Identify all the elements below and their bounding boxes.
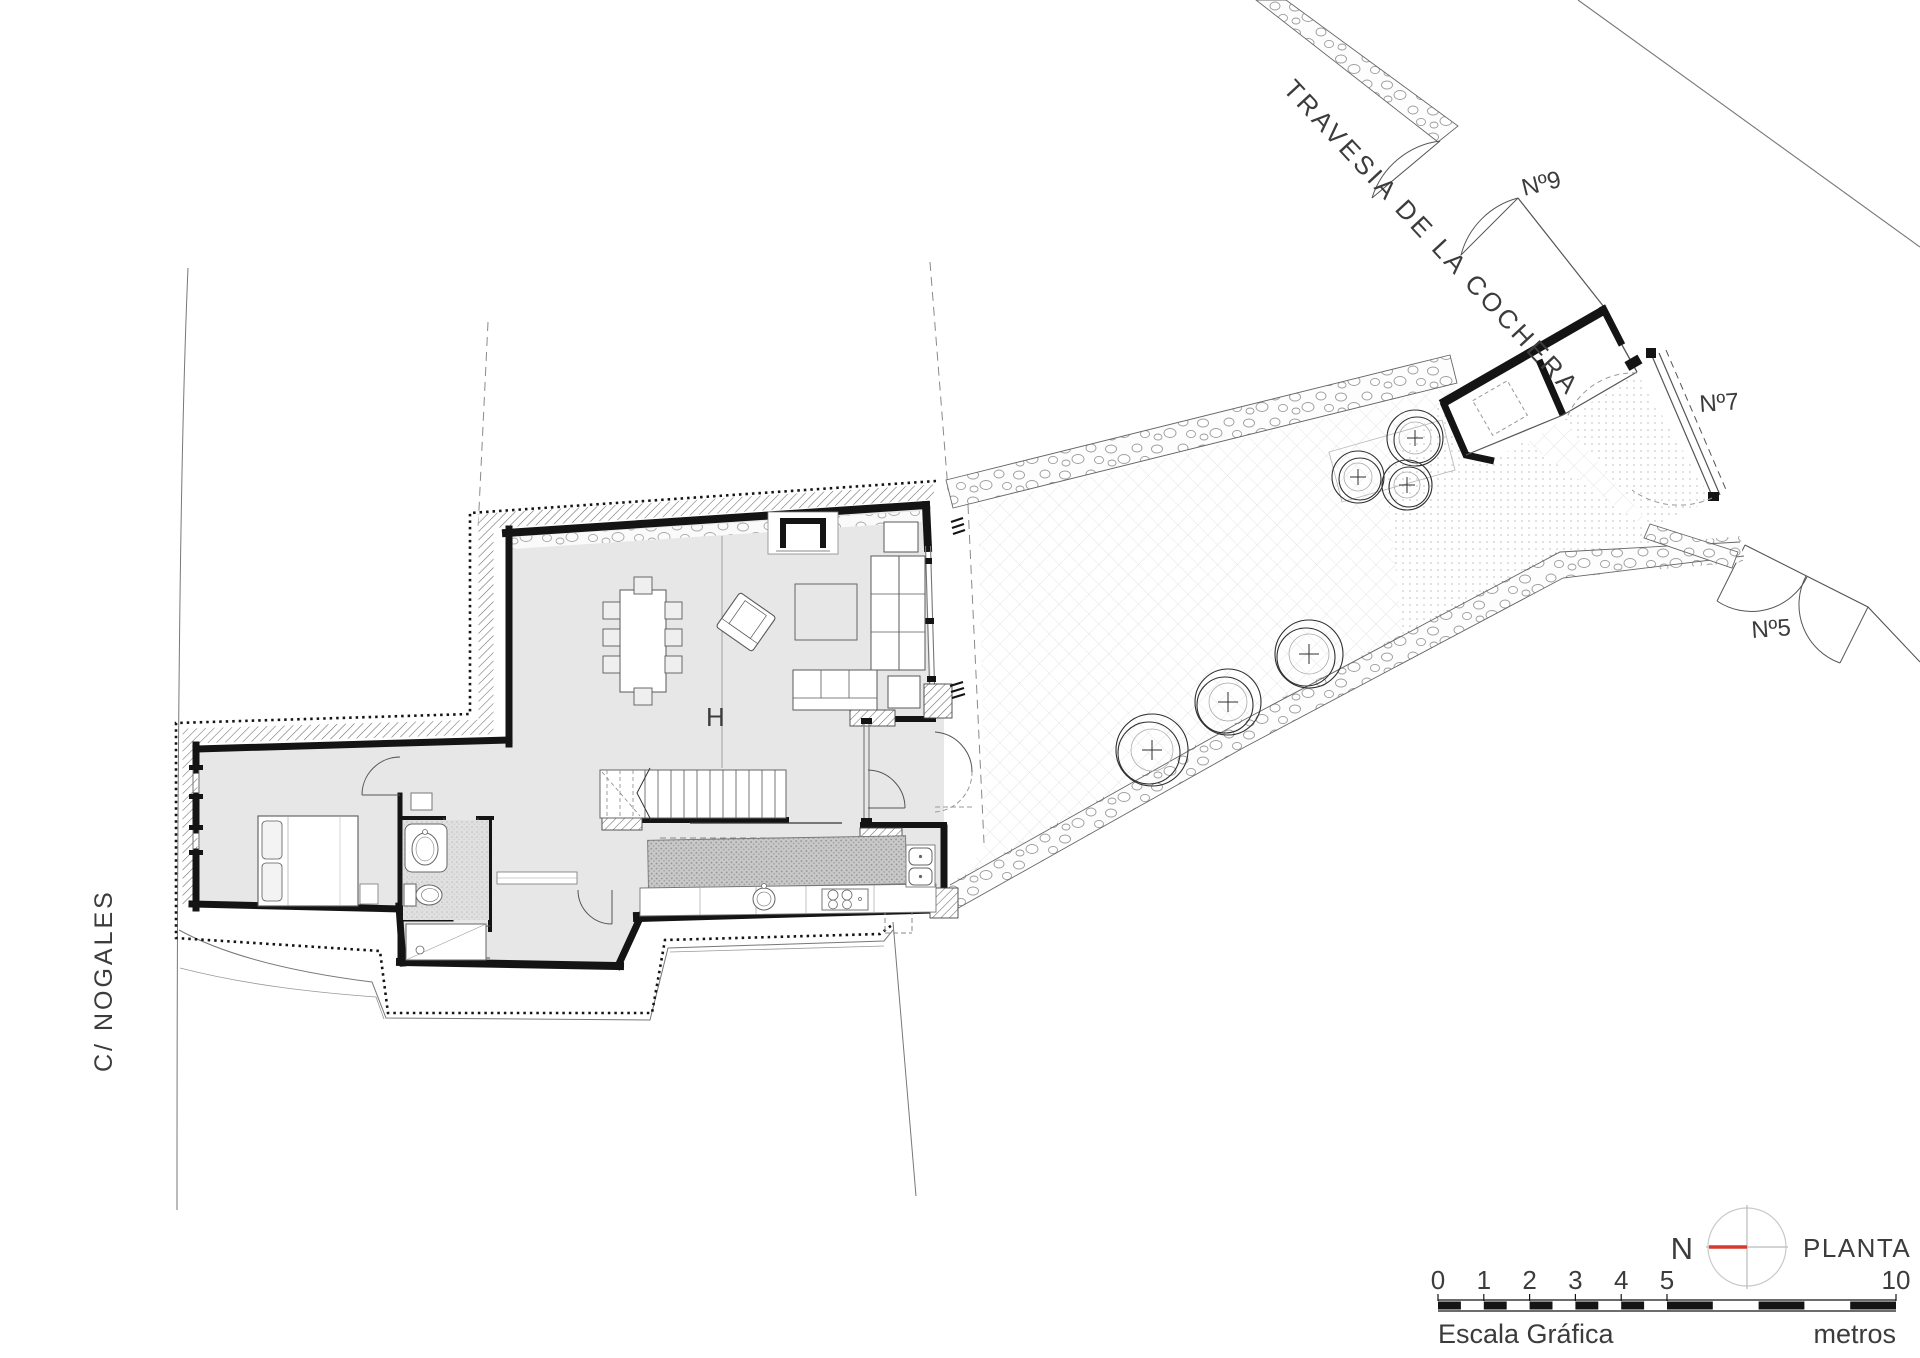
floor-plan-page: TRAVESIA DE LA COCHERA C/ NOGALES Nº9 Nº…	[0, 0, 1920, 1358]
scale-tick-label: 4	[1614, 1265, 1628, 1295]
street-label-nogales: C/ NOGALES	[90, 889, 118, 1072]
address-label-n7: Nº7	[1699, 388, 1740, 418]
stove	[822, 889, 868, 910]
sofa-straight	[793, 670, 877, 710]
plan-title: PLANTA BAJA	[1803, 1233, 1920, 1263]
double-sink-unit	[906, 845, 935, 887]
kitchen-counter	[640, 884, 936, 916]
floor-plan-canvas: TRAVESIA DE LA COCHERA C/ NOGALES Nº9 Nº…	[0, 0, 1920, 1358]
step-tick-marks	[950, 518, 965, 698]
dining-table	[620, 590, 666, 692]
bathroom	[403, 820, 489, 960]
fireplace-window	[768, 512, 838, 554]
vanity-sink	[405, 824, 447, 872]
bedside-table	[360, 884, 378, 904]
stone-wall-street-top	[1256, 0, 1458, 142]
scale-caption: Escala Gráfica	[1438, 1319, 1615, 1349]
kitchen	[640, 836, 936, 916]
scale-tick-label: 1	[1477, 1265, 1491, 1295]
address-label-n9: Nº9	[1519, 166, 1564, 202]
hall	[497, 872, 577, 884]
bed	[258, 816, 358, 906]
door-arc-n5	[1717, 545, 1868, 663]
scale-tick-label: 2	[1522, 1265, 1536, 1295]
scale-unit: metros	[1813, 1319, 1896, 1349]
building-main-house	[176, 481, 972, 1013]
scale-bar-blocks	[1438, 1302, 1896, 1310]
double-height-label: H	[706, 702, 725, 732]
garden-patio	[946, 355, 1744, 911]
toilet	[404, 884, 442, 906]
side-table	[884, 522, 918, 552]
scale-bar: 0 1 2 3 4 5 10 Escala Gráfica metros	[1431, 1265, 1911, 1349]
scale-tick-label: 0	[1431, 1265, 1445, 1295]
scale-tick-label: 3	[1568, 1265, 1582, 1295]
scale-tick-label: 10	[1882, 1265, 1911, 1295]
scale-tick-label: 5	[1660, 1265, 1674, 1295]
north-letter: N	[1671, 1231, 1693, 1266]
scale-bar-numbers: 0 1 2 3 4 5 10	[1431, 1265, 1911, 1295]
address-label-n5: Nº5	[1751, 614, 1792, 644]
side-table	[888, 676, 920, 708]
shower	[406, 924, 486, 960]
kitchen-island	[648, 836, 907, 888]
closet	[411, 793, 432, 810]
